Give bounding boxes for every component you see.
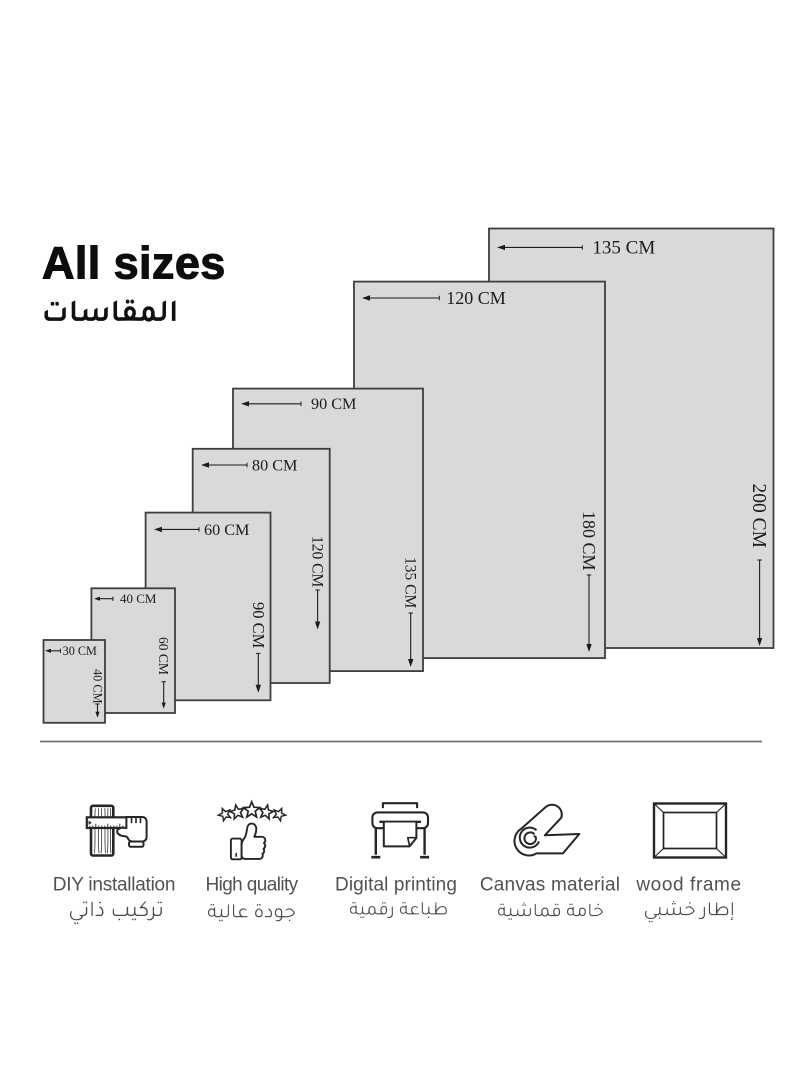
svg-text:135 CM: 135 CM <box>592 238 655 259</box>
svg-text:wood frame: wood frame <box>635 875 741 896</box>
svg-text:60 CM: 60 CM <box>204 521 249 539</box>
svg-text:60 CM: 60 CM <box>156 637 171 675</box>
svg-text:Digital printing: Digital printing <box>335 875 457 896</box>
svg-text:All sizes: All sizes <box>42 238 226 289</box>
svg-text:40 CM: 40 CM <box>90 669 104 704</box>
svg-text:120 CM: 120 CM <box>309 536 326 587</box>
svg-text:135 CM: 135 CM <box>402 557 419 608</box>
svg-text:30 CM: 30 CM <box>63 644 97 658</box>
svg-text:200 CM: 200 CM <box>748 484 769 548</box>
svg-text:High quality: High quality <box>205 875 298 896</box>
svg-text:Canvas material: Canvas material <box>480 875 620 896</box>
svg-text:180 CM: 180 CM <box>579 511 599 571</box>
svg-text:120 CM: 120 CM <box>446 288 506 308</box>
svg-text:90 CM: 90 CM <box>249 602 268 649</box>
svg-text:DIY installation: DIY installation <box>53 875 175 896</box>
svg-text:90 CM: 90 CM <box>311 395 356 413</box>
svg-text:40 CM: 40 CM <box>120 591 157 606</box>
svg-text:80 CM: 80 CM <box>252 456 297 474</box>
